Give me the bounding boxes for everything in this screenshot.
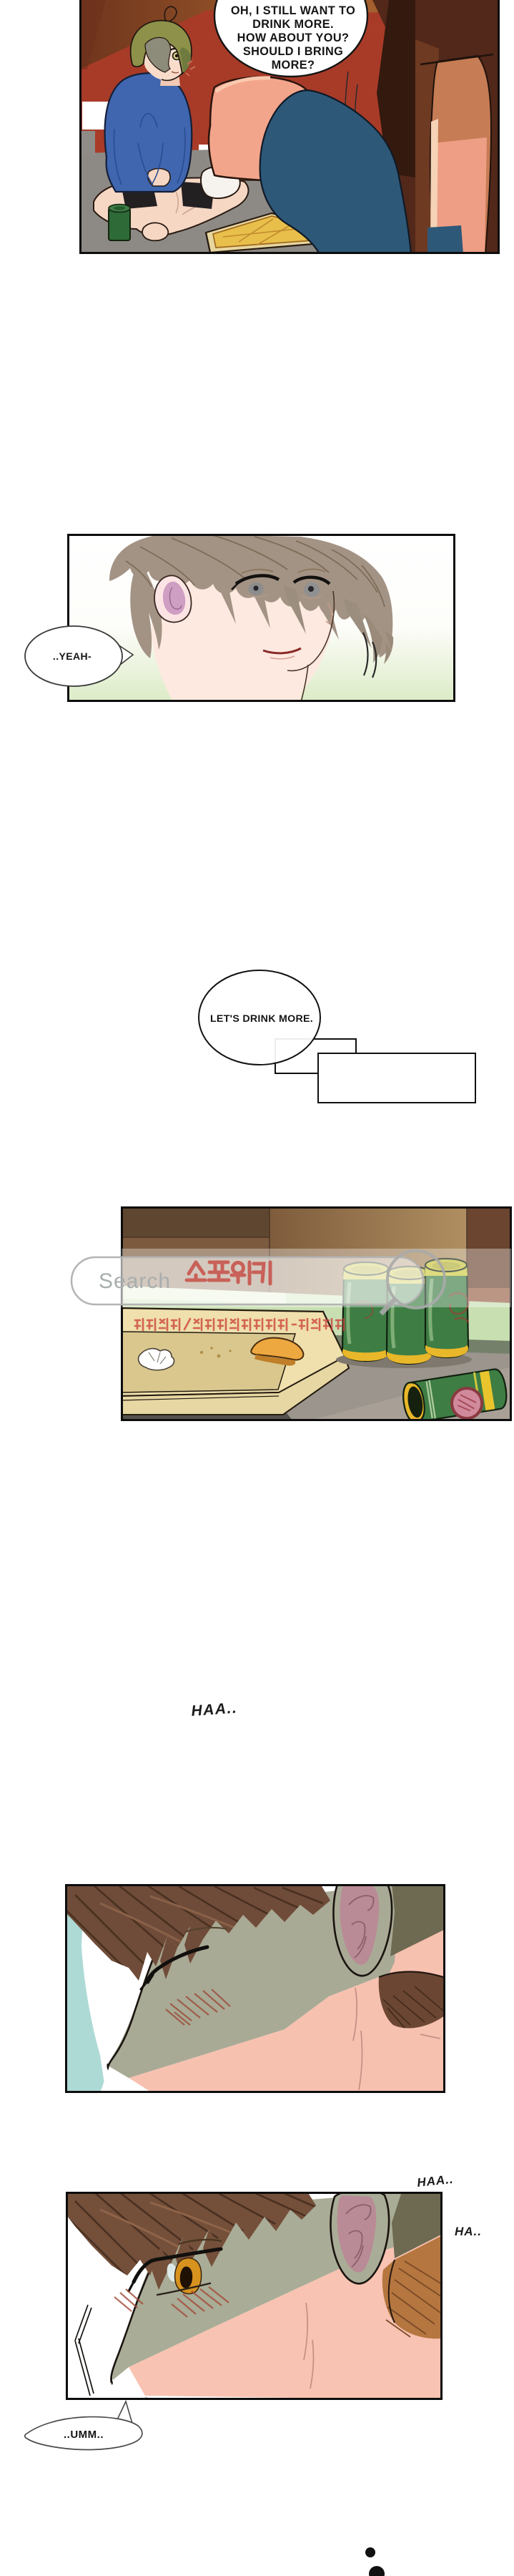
svg-text:..UMM..: ..UMM.. <box>64 2429 104 2441</box>
svg-text:SHOULD I BRING: SHOULD I BRING <box>243 45 343 58</box>
svg-text:MORE?: MORE? <box>272 59 315 72</box>
svg-text:HA..: HA.. <box>455 2225 482 2238</box>
svg-text:DRINK MORE.: DRINK MORE. <box>252 18 334 31</box>
svg-text:..YEAH-: ..YEAH- <box>53 650 92 662</box>
svg-text:HAA..: HAA.. <box>416 2172 454 2190</box>
svg-text:Search: Search <box>99 1269 171 1293</box>
svg-text:HOW ABOUT YOU?: HOW ABOUT YOU? <box>237 31 350 44</box>
svg-text:LET'S DRINK MORE.: LET'S DRINK MORE. <box>210 1013 313 1025</box>
svg-text:OH, I STILL WANT TO: OH, I STILL WANT TO <box>231 4 355 17</box>
svg-text:HAA..: HAA.. <box>191 1700 238 1719</box>
